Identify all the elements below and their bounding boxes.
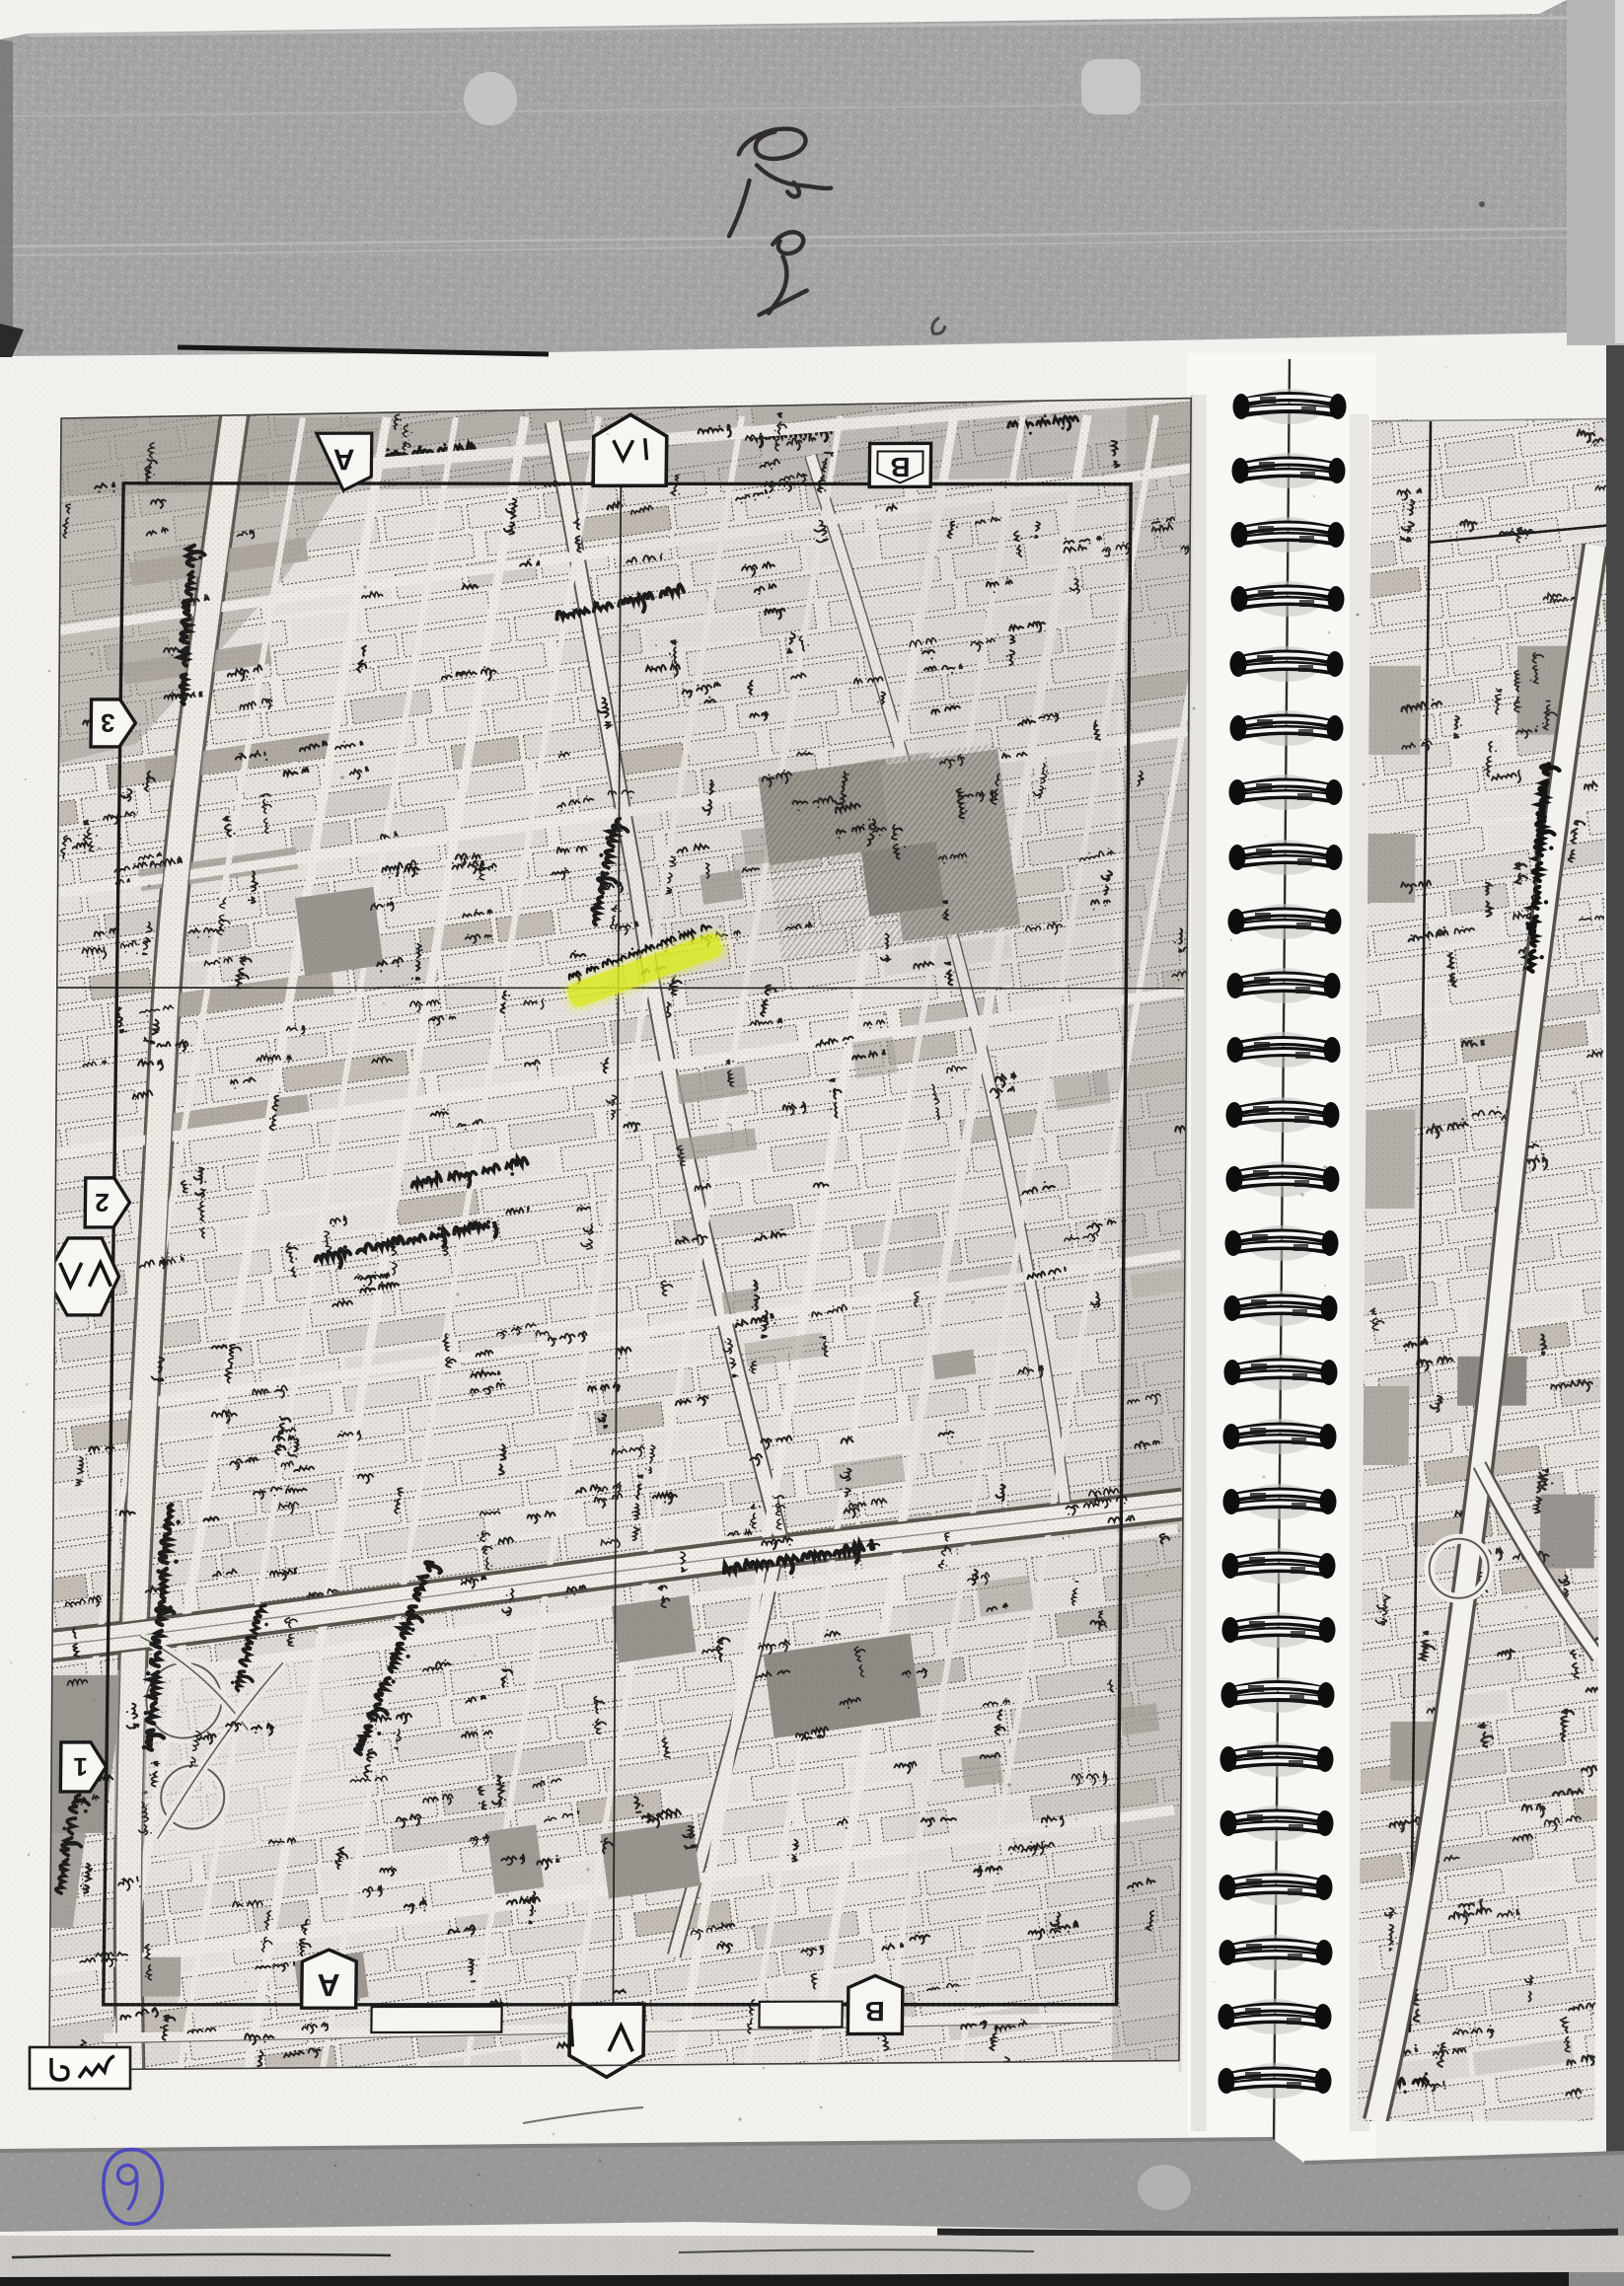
svg-text:2: 2 — [95, 1188, 110, 1217]
svg-text:A: A — [317, 1967, 340, 2003]
svg-text:3: 3 — [101, 708, 115, 738]
svg-text:B: B — [864, 1996, 885, 2027]
svg-text:B: B — [890, 452, 911, 482]
svg-text:1: 1 — [73, 1752, 88, 1782]
svg-text:A: A — [332, 443, 354, 476]
